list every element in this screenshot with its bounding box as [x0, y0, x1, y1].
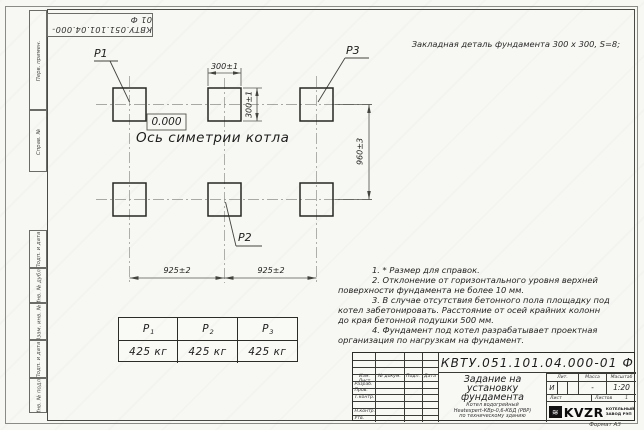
lit-cell-2: [557, 381, 568, 395]
product-line-3: по техническому зданию: [459, 414, 525, 420]
note-1: 1. * Размер для справок.: [338, 265, 610, 275]
tb-line: [404, 353, 405, 422]
point-label-p3: Р3: [346, 44, 360, 57]
load-header-sub: 1: [150, 328, 154, 336]
point-label-p2: Р2: [238, 231, 252, 244]
kvzr-logo-icon: ≋: [549, 406, 562, 418]
dim-span-right: 925±2: [241, 266, 301, 275]
logo-sub-line-2: ЗАВОД РЭП: [606, 412, 635, 417]
point-label-p1: Р1: [94, 47, 108, 60]
boiler-symmetry-axis-label: Ось симетрии котла: [136, 130, 289, 146]
dim-pad-width: 300±1: [194, 62, 255, 71]
rev-header-ndocum: № докум.: [375, 375, 404, 380]
tb-line: [353, 367, 438, 368]
note-4: 4. Фундамент под котел разрабатывает про…: [338, 325, 610, 345]
title-block: Изм. Лист № докум. Подп. Дата Разраб. Пр…: [352, 352, 635, 421]
load-value-p3: 425 кг: [238, 341, 297, 363]
dim-span-left: 925±2: [147, 266, 207, 275]
load-table-header-p2: Р2: [178, 318, 237, 341]
kvzr-logo-subtext: КОТЕЛЬНЫЙ ЗАВОД РЭП: [606, 407, 635, 416]
mass-value: -: [578, 381, 606, 395]
tb-line: [353, 415, 438, 416]
note-3: 3. В случае отсутствия бетонного пола пл…: [338, 295, 610, 325]
kvzr-logo-text: KVZR: [564, 405, 604, 420]
row-utv: Утв.: [355, 417, 365, 422]
blueprint-page: Перв. примен. Справ. № Подп. и дата Инв.…: [0, 0, 644, 430]
load-table-header-p3: Р3: [238, 318, 297, 341]
load-header-sub: 3: [269, 328, 273, 336]
lit-cell-3: [567, 381, 578, 395]
format-note: Формат А3: [575, 422, 635, 428]
row-nkontr: Н.контр.: [355, 410, 376, 415]
row-prov: Пров.: [355, 389, 368, 394]
mass-header: Масса: [578, 373, 606, 381]
rev-header-data: Дата: [422, 375, 438, 380]
tb-line: [353, 401, 438, 402]
embedded-detail-note: Закладная деталь фундамента 300 x 300, S…: [380, 39, 620, 49]
lit-value: И: [546, 381, 557, 395]
tb-line: [353, 360, 438, 361]
company-logo-cell: ≋ KVZR КОТЕЛЬНЫЙ ЗАВОД РЭП: [546, 401, 636, 422]
load-value-p1: 425 кг: [119, 341, 178, 363]
title-line-3: фундамента: [461, 393, 524, 402]
scale-value: 1:20: [606, 381, 636, 395]
row-razrab: Разраб.: [355, 383, 373, 388]
drawing-notes: 1. * Размер для справок. 2. Отклонение о…: [338, 265, 610, 345]
load-header-name: Р: [143, 323, 149, 335]
load-table: Р1 Р2 Р3 425 кг 425 кг 425 кг: [118, 317, 298, 362]
dim-row-gap: 960±3: [356, 122, 367, 182]
doc-number: КВТУ.051.101.04.000-01 Ф: [438, 353, 636, 373]
load-header-sub: 2: [210, 328, 214, 336]
row-tkontr: Т.контр.: [355, 396, 375, 401]
dim-pad-height: 300±1: [245, 75, 256, 135]
tb-line: [422, 353, 423, 422]
rev-header-podp: Подп.: [404, 375, 422, 380]
tb-line: [375, 353, 376, 422]
load-header-name: Р: [262, 323, 268, 335]
note-2: 2. Отклонение от горизонтального уровня …: [338, 275, 610, 295]
load-header-name: Р: [202, 323, 208, 335]
scale-header: Масштаб: [606, 373, 636, 381]
lit-header: Лит.: [546, 373, 578, 381]
load-table-header-p1: Р1: [119, 318, 178, 341]
load-value-p2: 425 кг: [178, 341, 237, 363]
drawing-title-cell: Задание на установку фундамента Котел во…: [438, 373, 546, 422]
elevation-mark: 0.000: [147, 114, 186, 130]
